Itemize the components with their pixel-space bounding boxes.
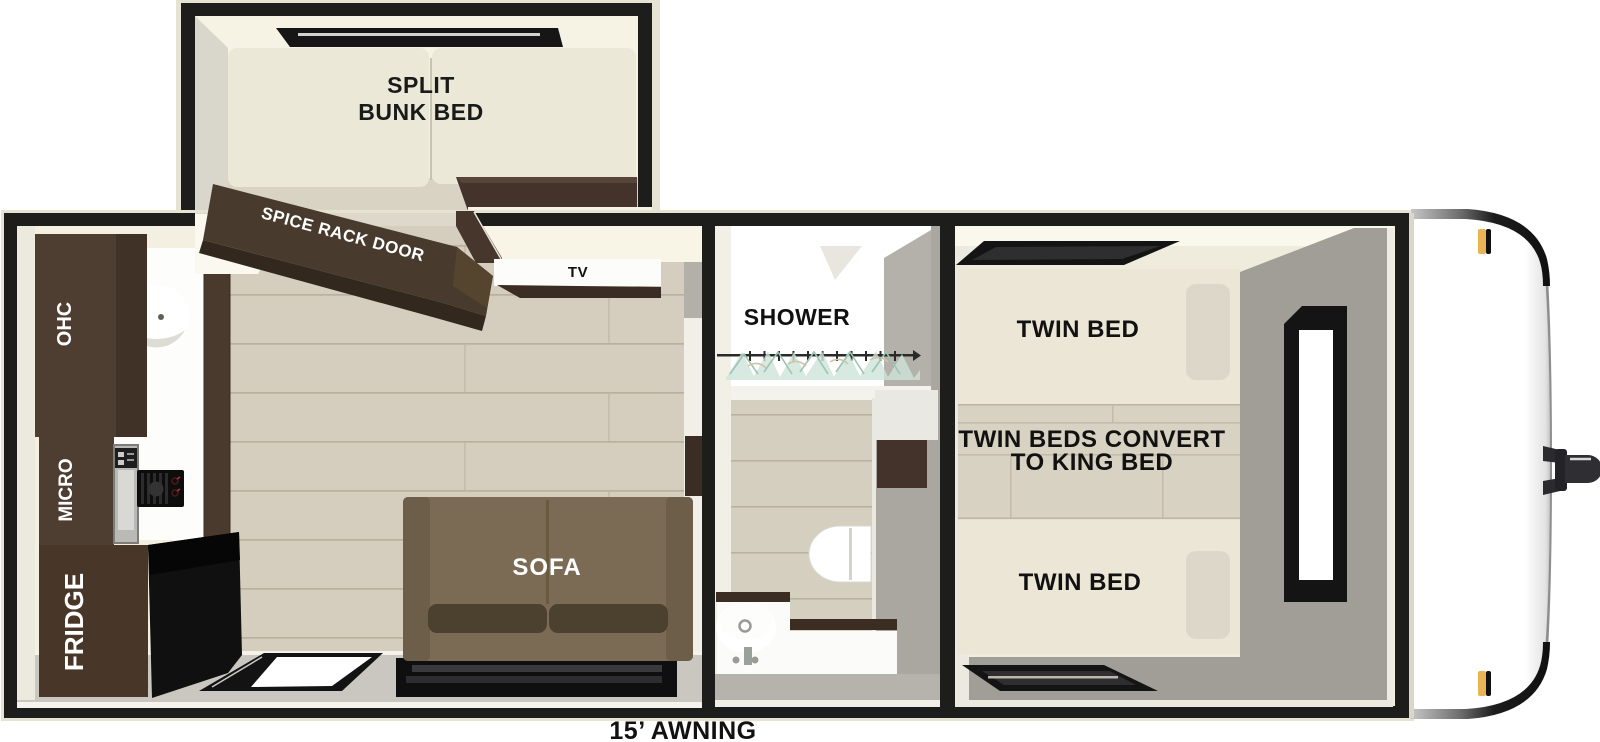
svg-text:TV: TV (568, 264, 588, 281)
svg-text:TWIN BED: TWIN BED (1019, 569, 1142, 596)
svg-text:SHOWER: SHOWER (744, 304, 851, 330)
svg-text:SPLIT: SPLIT (387, 72, 455, 98)
svg-text:OHC: OHC (54, 302, 76, 346)
svg-text:TWIN BED: TWIN BED (1017, 316, 1140, 343)
svg-text:SOFA: SOFA (512, 554, 581, 581)
svg-text:MICRO: MICRO (56, 458, 77, 521)
svg-text:15’ AWNING: 15’ AWNING (609, 717, 756, 742)
svg-text:FRIDGE: FRIDGE (59, 573, 89, 671)
svg-text:TO KING BED: TO KING BED (1011, 449, 1173, 476)
svg-text:BUNK BED: BUNK BED (358, 99, 483, 125)
